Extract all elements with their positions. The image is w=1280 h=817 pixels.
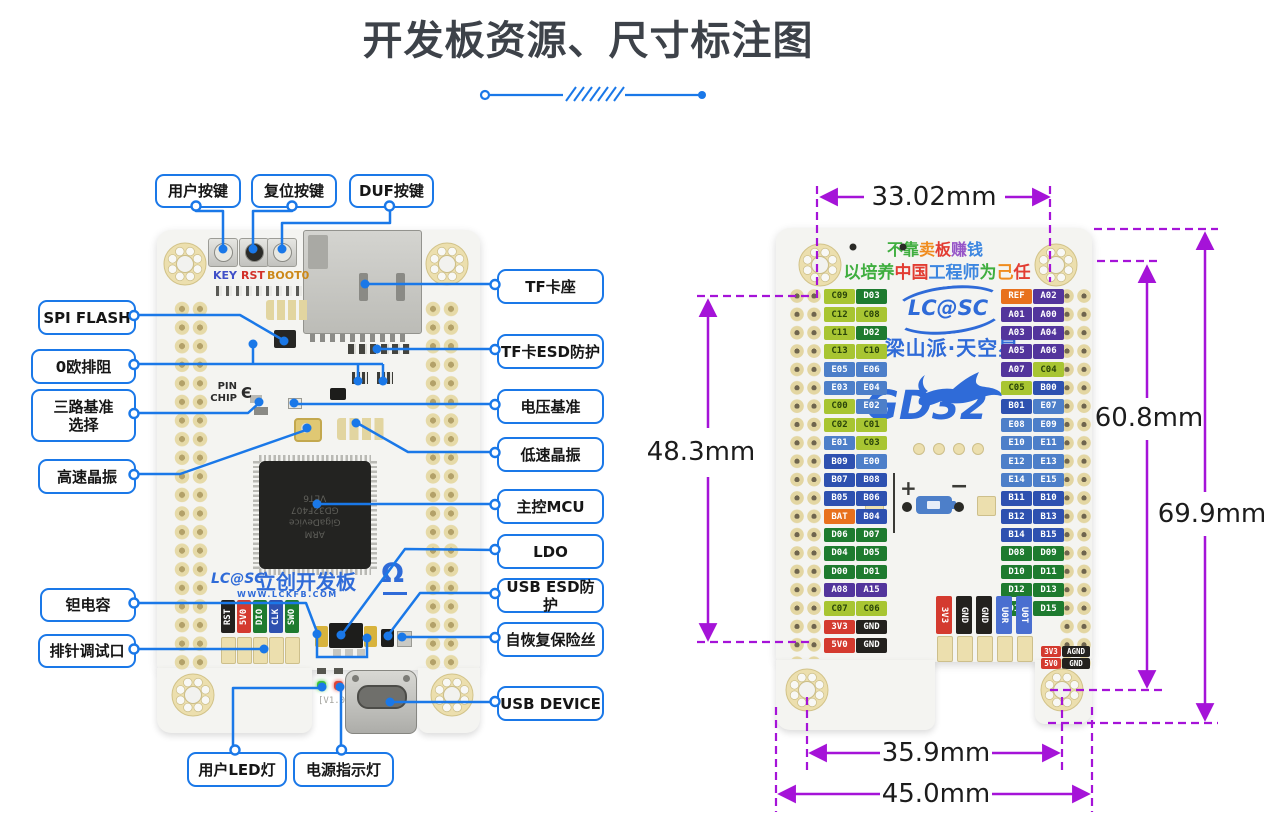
pin-label-vertical: U0R [996,596,1012,634]
front-pcb-tab-right [418,668,480,733]
pin-label: D01 [856,565,887,580]
slogan-segment: 为 [980,263,997,283]
silk-chip: CHIP [210,393,237,404]
pin-label: C11 [824,326,855,341]
jumper-2 [254,407,268,415]
pin-label: B01 [1001,399,1032,414]
pin-label: B12 [1001,509,1032,524]
callout-dianya_jizhun: 电压基准 [497,389,604,424]
dim-right-outer: 69.9mm [1147,499,1277,529]
slogan-segment: 不靠 [887,240,919,259]
usb-esd-chip [381,629,394,647]
pin-label: D02 [856,326,887,341]
slogan-line-1: 不靠卖板赚钱 [855,236,1015,260]
pin-label: C12 [824,307,855,322]
silk-pin-chip: PIN CHIP [195,381,237,405]
slogan-segment: 以培养 [844,263,895,283]
lse-crystal-caps [337,418,385,440]
led-resistor [317,668,326,674]
hse-crystal [294,418,322,442]
pin-label: C08 [856,307,887,322]
slogan-segment: 卖 [919,240,935,259]
pin-label: D09 [1033,546,1064,561]
callout-tf_esd: TF卡ESD防护 [497,334,604,369]
ldo-leg [357,649,365,658]
callout-sanlu_jizhun: 三路基准 选择 [31,389,136,442]
pin-label: B15 [1033,528,1064,543]
callout-gaosu_jingzhen: 高速晶振 [38,459,136,494]
callout-zihuifu: 自恢复保险丝 [497,622,604,657]
debug-pad [937,636,953,662]
callout-ldo: LDO [497,534,604,569]
back-pads-left [789,287,823,659]
pin-label: C05 [1001,381,1032,396]
pin-label: BAT [824,509,855,524]
pin-label: C06 [856,601,887,616]
page-title: 开发板资源、尺寸标注图 [338,8,838,66]
pin-label: B10 [1033,491,1064,506]
debug-pad [997,636,1013,662]
pin-label: E05 [824,362,855,377]
callout-tf_kazuo: TF卡座 [497,269,604,304]
pin-label: GND [856,620,887,635]
url-text: WWW.LCKFB.COM [237,590,338,599]
pin-label: C03 [856,436,887,451]
debug-pad [237,637,252,664]
resistor-row [216,286,304,296]
pin-label: A08 [824,583,855,598]
callout-usb_device: USB DEVICE [497,686,604,721]
dim-bottom-inner: 35.9mm [871,738,1001,768]
pin-label: E03 [824,381,855,396]
debug-pin-label: DIO [253,600,267,633]
pin-label: B08 [856,473,887,488]
ldo-leg [333,649,341,658]
pin-label: D03 [856,289,887,304]
debug-pad [285,637,300,664]
pin-label: D05 [856,546,887,561]
pin-label: C07 [824,601,855,616]
pin-label-vertical: 3V3 [936,596,952,634]
front-pcb-tab-left [157,668,312,733]
pin-label: D10 [1001,565,1032,580]
callout-yonghu_anjian: 用户按键 [155,174,241,208]
pin-label: C01 [856,418,887,433]
back-pcb-tab-left [776,660,935,730]
pin-label: E06 [856,362,887,377]
silk-key: KEY [213,269,237,282]
ldo-chip [329,623,363,648]
pin-label: E10 [1001,436,1032,451]
callout-spi_flash: SPI FLASH [38,300,136,335]
pin-label: A03 [1001,326,1032,341]
callout-usb_esd: USB ESD防护 [497,578,604,613]
slogan-segment: 赚 [951,240,967,259]
tf-contacts [310,334,410,342]
silk-pin: PIN [218,381,237,392]
pin-label: A06 [1033,344,1064,359]
slogan-segment: 任 [1014,263,1031,283]
pin-label: D06 [824,528,855,543]
pin-label: 5V0 [824,638,855,653]
pin-label: B13 [1033,509,1064,524]
pin-label: A01 [1001,307,1032,322]
tf-card-socket [303,230,422,334]
pin-label: D13 [1033,583,1064,598]
spi-flash-chip [274,330,296,348]
zero-ohm-array-1 [352,372,368,384]
battery-divider [893,473,895,533]
omega-underline [383,592,407,595]
callout-zhukong_mcu: 主控MCU [497,489,604,524]
tantalum-cap-right [364,626,377,647]
pin-label: C02 [824,418,855,433]
vref-component [288,398,302,409]
debug-pad [269,637,284,664]
debug-pin-label: SWO [285,600,299,633]
battery-minus: − [950,474,968,499]
tf-esd-row [348,344,410,354]
silk-boot0: BOOT0 [267,269,309,282]
back-pads-right [1059,287,1093,667]
pin-label: B04 [856,509,887,524]
slogan-line-2: 以培养中国工程师为己任 [831,258,1043,283]
pin-label: A07 [1001,362,1032,377]
fuse-component [397,631,412,647]
silk-rst: RST [241,269,265,282]
battery-plus: + [900,476,917,500]
pin-label: B11 [1001,491,1032,506]
pin-label: D07 [856,528,887,543]
pin-label: E04 [856,381,887,396]
pin-label: D08 [1001,546,1032,561]
pin-label: D15 [1033,601,1064,616]
page: 开发板资源、尺寸标注图 KEY RST BOOT0 PIN CHIP [0,0,1280,817]
callout-duf_anjian: DUF按键 [349,174,434,208]
debug-pad [1017,636,1033,662]
silk-bracket: Є [241,384,252,402]
pin-label: B05 [824,491,855,506]
callout-ou_paizu: 0欧排阻 [31,349,136,384]
pin-label: B07 [824,473,855,488]
pin-label: E09 [1033,418,1064,433]
pin-label: D04 [824,546,855,561]
battery-pad [977,496,996,516]
pin-label: B06 [856,491,887,506]
debug-pad [957,636,973,662]
back-board: 不靠卖板赚钱 以培养中国工程师为己任 LC@SC 梁山派·天空星 GD32 + … [776,228,1092,730]
usb-c-connector [345,670,417,734]
user-led [317,681,326,690]
pin-label: E07 [1033,399,1064,414]
pin-label-vertical: GND [976,596,992,634]
debug-pad [253,637,268,664]
callout-yonghu_led: 用户LED灯 [187,752,287,787]
dim-right-inner: 60.8mm [1084,403,1214,433]
mcu-marking: ARM GigaDevice GD32F407 VET6 [289,491,340,540]
battery-icon [916,496,952,514]
pin-label: E14 [1001,473,1032,488]
pin-label: A05 [1001,344,1032,359]
mcu-chip: ARM GigaDevice GD32F407 VET6 [253,455,377,575]
pin-label: C04 [1033,362,1064,377]
callout-fuwei_anjian: 复位按键 [251,174,337,208]
pin-label: B14 [1001,528,1032,543]
pin-label: A02 [1033,289,1064,304]
slogan-segment: 己 [997,263,1014,283]
reset-button [239,238,269,267]
slogan-segment: 板 [935,240,951,259]
debug-pin-label: CLK [269,600,283,633]
pin-label: E00 [856,454,887,469]
pin-label: E12 [1001,454,1032,469]
pin-label-vertical: U0T [1016,596,1032,634]
corner-pin-label: 5V0 [1041,658,1061,669]
pin-label: E11 [1033,436,1064,451]
pin-label: E13 [1033,454,1064,469]
front-board: KEY RST BOOT0 PIN CHIP Є [157,230,480,733]
pin-label-vertical: GND [956,596,972,634]
front-pads-right [424,300,460,672]
debug-pin-label: RST [221,600,235,633]
omega-mark: Ω [381,558,404,589]
boot0-button [267,238,297,267]
pin-label: C10 [856,344,887,359]
pin-label: D00 [824,565,855,580]
debug-pin-label: 5V0 [237,600,251,633]
callout-tan_dianrong: 钽电容 [40,588,136,622]
cap-group-a [266,300,310,320]
led-resistor [334,668,343,674]
power-led [334,681,343,690]
callout-paizhen_tiaoshikou: 排针调试口 [38,634,136,668]
pin-label: B00 [1033,381,1064,396]
pin-label: C00 [824,399,855,414]
back-pcb-tab-right [1035,660,1092,724]
dim-left: 48.3mm [636,437,766,467]
debug-pad [977,636,993,662]
pin-label: C13 [824,344,855,359]
pin-label: E01 [824,436,855,451]
pin-label: E02 [856,399,887,414]
slogan-segment: 工程师 [929,263,980,283]
user-key-button [208,238,238,267]
corner-pin-label: 3V3 [1041,646,1061,657]
callout-disu_jingzhen: 低速晶振 [497,437,604,472]
pin-label: A15 [856,583,887,598]
debug-pad [221,637,236,664]
corner-pin-label: GND [1062,658,1090,669]
pin-label: GND [856,638,887,653]
callout-dianyuan_led: 电源指示灯 [293,752,394,787]
sot23-transistor [330,388,346,400]
pin-label: C09 [824,289,855,304]
tantalum-cap-left [315,626,328,647]
pin-label: E08 [1001,418,1032,433]
pin-label: B09 [824,454,855,469]
slogan-segment: 钱 [967,240,983,259]
front-pads-left [173,300,209,672]
pin-label: 3V3 [824,620,855,635]
slogan-segment: 中国 [895,263,929,283]
pin-label: D11 [1033,565,1064,580]
pin-label: A04 [1033,326,1064,341]
pin-label: REF [1001,289,1032,304]
corner-pin-label: AGND [1062,646,1090,657]
dim-bottom-outer: 45.0mm [871,779,1001,809]
leopard-logo [915,368,1007,414]
dim-top: 33.02mm [869,182,999,212]
pin-label: E15 [1033,473,1064,488]
zero-ohm-array-2 [377,372,393,384]
pin-label: A00 [1033,307,1064,322]
ldo-leg [345,649,353,658]
